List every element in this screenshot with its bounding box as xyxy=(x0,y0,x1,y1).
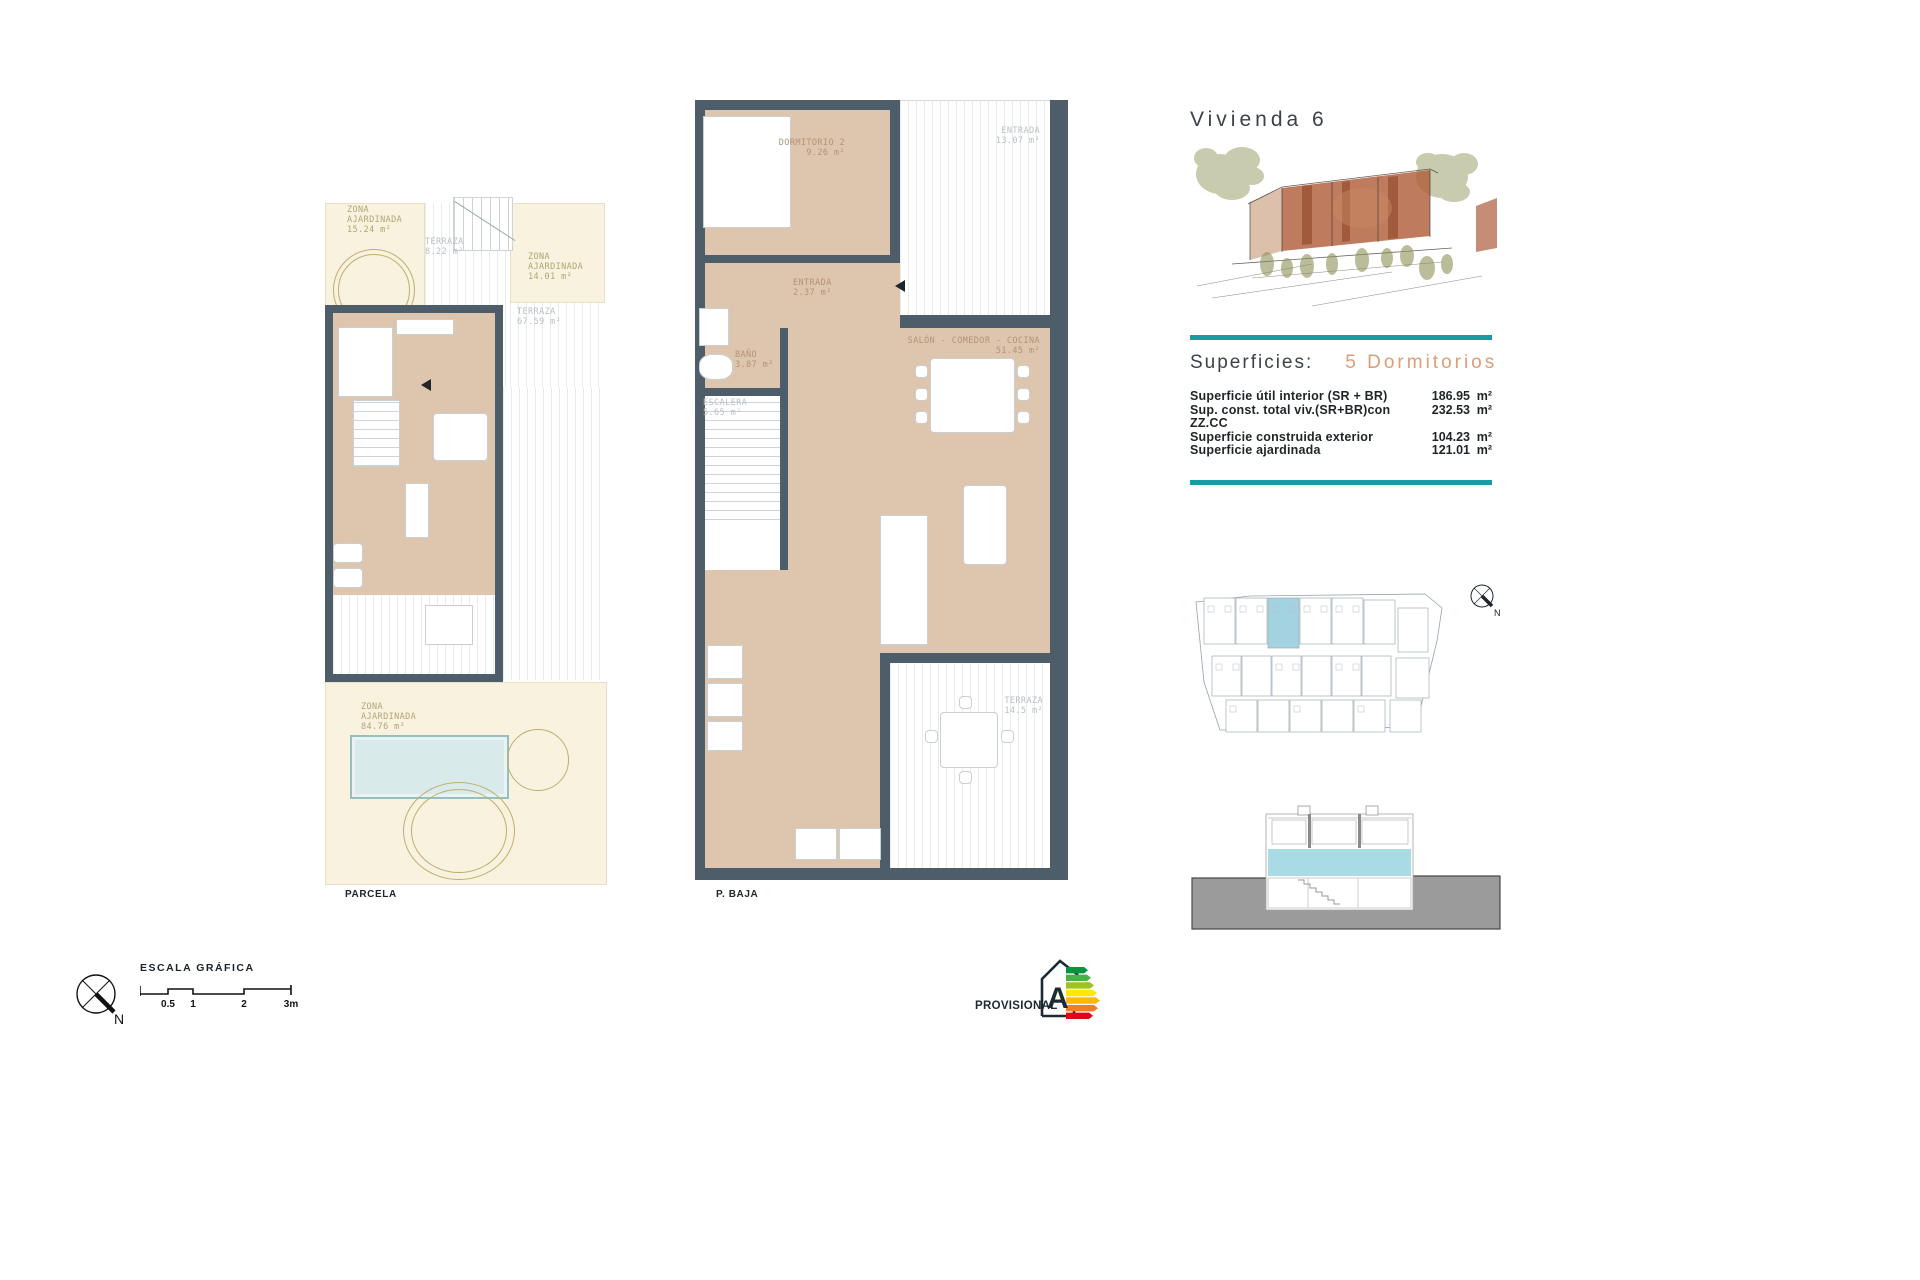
sketch-left-tree xyxy=(1194,147,1264,200)
divider-rule xyxy=(1190,335,1492,340)
plan-sheet: ZONA AJARDINADA 15.24 m² TERRAZA 8.22 m²… xyxy=(0,0,1920,1280)
label-escalera: ESCALERA 5.65 m² xyxy=(703,398,773,418)
area-label: Sup. const. total viv.(SR+BR)con ZZ.CC xyxy=(1190,404,1422,431)
compass-north-label: N xyxy=(114,1011,124,1027)
bath-fixture xyxy=(333,543,363,563)
bedrooms-value: 5 Dormitorios xyxy=(1345,352,1497,373)
house-sketch xyxy=(1192,136,1497,311)
wall-terrace-bottom xyxy=(900,315,1050,328)
wall-right xyxy=(1050,100,1068,880)
areas-table: Superficie útil interior (SR + BR) 186.9… xyxy=(1190,390,1492,458)
dining-table xyxy=(433,413,488,461)
area-value: 232.53 xyxy=(1422,404,1470,431)
wall-top xyxy=(695,100,900,110)
scale-tick: 3m xyxy=(284,999,299,1010)
area-label: Superficie ajardinada xyxy=(1190,444,1422,458)
area-value: 186.95 xyxy=(1422,390,1470,404)
parcela-caption: PARCELA xyxy=(345,889,397,900)
kitchen-counter xyxy=(839,828,881,860)
section-highlight-band xyxy=(1268,849,1411,876)
toilet xyxy=(699,354,733,380)
chair xyxy=(925,730,938,743)
energy-bars xyxy=(1066,967,1100,1019)
area-value: 121.01 xyxy=(1422,444,1470,458)
label-salon: SALÓN - COMEDOR - COCINA 51.45 m² xyxy=(875,336,1040,356)
compass-north-label: N xyxy=(1494,608,1501,618)
compass-icon: N xyxy=(1462,580,1508,630)
label-garden-bottom: ZONA AJARDINADA 84.76 m² xyxy=(361,702,451,732)
label-dormitorio2: DORMITORIO 2 9.26 m² xyxy=(715,138,845,158)
scale-tick: 2 xyxy=(241,999,247,1010)
energy-rating-icon: A xyxy=(1034,952,1104,1027)
shower xyxy=(699,308,729,346)
wall-dorm-bottom xyxy=(695,255,900,263)
sketch-facade-streak xyxy=(1302,185,1312,245)
bed xyxy=(703,116,791,228)
pbaja-caption: P. BAJA xyxy=(716,889,758,900)
section-drawing xyxy=(1190,796,1502,932)
interior-stairs xyxy=(353,400,400,467)
entry-arrow-icon xyxy=(421,379,431,391)
label-terraza-large: TERRAZA 67.59 m² xyxy=(517,307,597,327)
label-bano: BAÑO 3.87 m² xyxy=(735,350,795,370)
label-garden-top: ZONA AJARDINADA 15.24 m² xyxy=(347,205,427,235)
kitchen-island xyxy=(880,515,928,645)
superficies-label: Superficies: xyxy=(1190,352,1313,373)
entry-arrow-icon xyxy=(895,280,905,292)
chair xyxy=(1001,730,1014,743)
pbaja-plan: DORMITORIO 2 9.26 m² ENTRADA 13.07 m² EN… xyxy=(695,100,1068,880)
kitchen-hob xyxy=(707,683,743,717)
terrace-table xyxy=(425,605,473,645)
scale-tick: 1 xyxy=(190,999,196,1010)
highlighted-unit xyxy=(1268,598,1299,648)
area-unit: m² xyxy=(1470,390,1492,404)
area-row: Superficie ajardinada 121.01 m² xyxy=(1190,444,1492,458)
superficies-heading: Superficies:5 Dormitorios xyxy=(1190,352,1497,374)
site-units xyxy=(1204,598,1429,732)
label-garden-right: ZONA AJARDINADA 14.01 m² xyxy=(528,252,602,282)
area-row: Superficie construida exterior 104.23 m² xyxy=(1190,431,1492,445)
tree-circle-inner xyxy=(411,789,507,873)
area-row: Superficie útil interior (SR + BR) 186.9… xyxy=(1190,390,1492,404)
kitchen-oven xyxy=(707,721,743,751)
stair-landing xyxy=(695,520,780,570)
chair xyxy=(1017,365,1030,378)
tree-circle xyxy=(507,729,569,791)
chair xyxy=(1017,411,1030,424)
wall-terrace-top xyxy=(880,653,1050,663)
divider-rule xyxy=(1190,480,1492,485)
page-title: Vivienda 6 xyxy=(1190,108,1328,132)
kitchen-sink xyxy=(707,645,743,679)
site-location-plan xyxy=(1190,586,1465,741)
terrace-table xyxy=(940,712,998,768)
sketch-ground-lines xyxy=(1197,262,1482,306)
chair xyxy=(1017,388,1030,401)
kitchen-island xyxy=(405,483,429,538)
energy-letter: A xyxy=(1047,982,1069,1015)
terrace-zone-right xyxy=(503,387,605,680)
label-terraza: TERRAZA 14.5 m² xyxy=(953,696,1043,716)
sketch-side-wall xyxy=(1250,188,1282,260)
chair xyxy=(915,365,928,378)
parcela-plan: ZONA AJARDINADA 15.24 m² TERRAZA 8.22 m²… xyxy=(325,197,610,887)
area-unit: m² xyxy=(1470,404,1492,431)
compass-icon: N xyxy=(72,968,132,1030)
scale-title: ESCALA GRÁFICA xyxy=(140,962,255,974)
sofa xyxy=(963,485,1007,565)
kitchen-counter xyxy=(795,828,837,860)
label-entrada: ENTRADA 2.37 m² xyxy=(793,278,893,298)
closet xyxy=(396,319,454,335)
dining-table xyxy=(930,358,1015,433)
area-row: Sup. const. total viv.(SR+BR)con ZZ.CC 2… xyxy=(1190,404,1492,431)
wall-dorm-right xyxy=(890,100,900,262)
scale-bar: 0.5 1 2 3m xyxy=(140,982,305,1010)
chair xyxy=(915,411,928,424)
label-entrada-terraza: ENTRADA 13.07 m² xyxy=(910,126,1040,146)
area-unit: m² xyxy=(1470,444,1492,458)
sketch-facade-light xyxy=(1332,188,1392,228)
label-terraza-small: TERRAZA 8.22 m² xyxy=(425,237,495,257)
wall-terrace-left xyxy=(880,653,890,880)
area-label: Superficie construida exterior xyxy=(1190,431,1422,445)
scale-tick: 0.5 xyxy=(161,999,175,1010)
bath-fixture xyxy=(333,568,363,588)
section-column xyxy=(1358,814,1361,848)
section-parapet xyxy=(1298,806,1310,815)
chair xyxy=(915,388,928,401)
section-parapet xyxy=(1366,806,1378,815)
area-label: Superficie útil interior (SR + BR) xyxy=(1190,390,1422,404)
bed xyxy=(338,327,393,397)
room-cocina xyxy=(695,570,885,868)
section-column xyxy=(1308,814,1311,848)
wall-bano-bottom xyxy=(695,388,785,396)
building-footprint xyxy=(325,305,503,682)
chair xyxy=(959,771,972,784)
area-unit: m² xyxy=(1470,431,1492,445)
area-value: 104.23 xyxy=(1422,431,1470,445)
sketch-bg-building xyxy=(1476,198,1497,252)
